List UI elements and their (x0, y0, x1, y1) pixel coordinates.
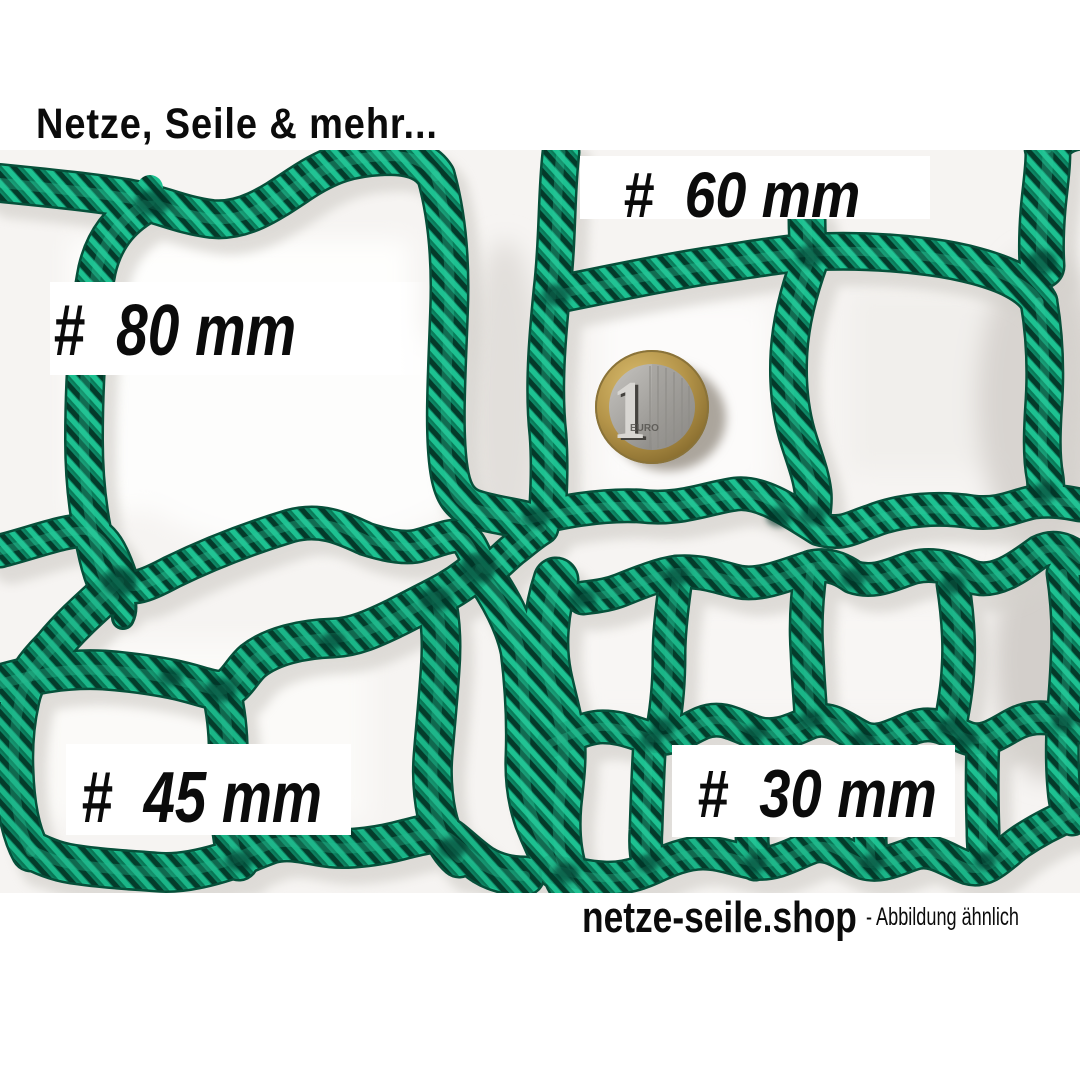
svg-text:EURO: EURO (630, 423, 659, 434)
svg-text:1: 1 (612, 364, 646, 457)
